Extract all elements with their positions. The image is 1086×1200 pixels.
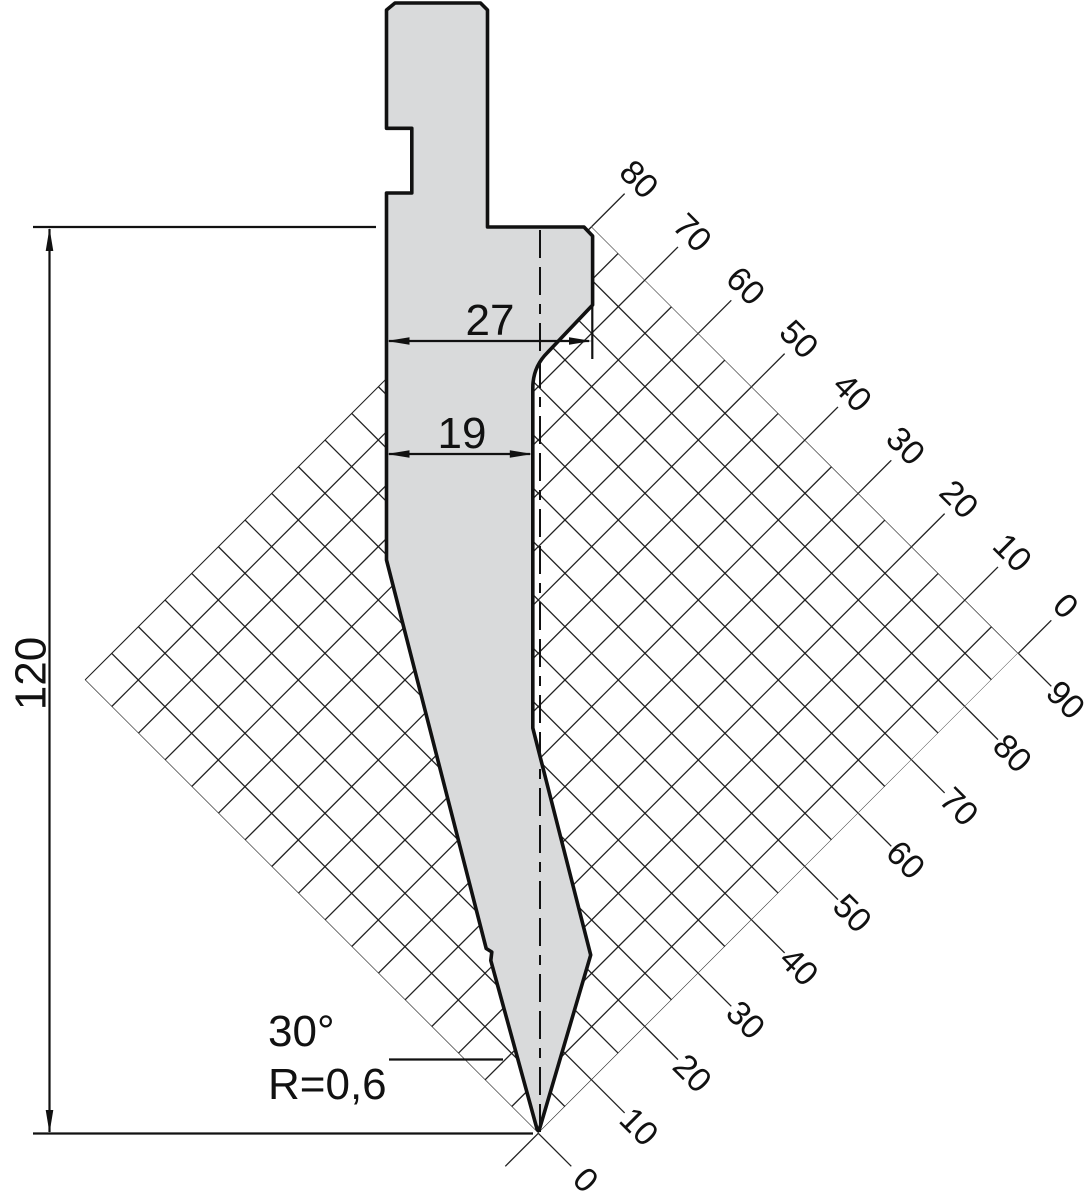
tick-line: [645, 247, 678, 280]
tick-line: [752, 920, 785, 953]
tip-angle-label: 30°: [268, 1007, 335, 1056]
tick-line: [592, 1080, 625, 1113]
tip-annotation: 30° R=0,6: [268, 1007, 503, 1109]
punch-profile: [387, 3, 593, 1130]
tick-line: [805, 867, 838, 900]
arrowhead-up: [46, 228, 54, 251]
punch-drawing-svg: 807060504030201009080706050403020100 120…: [0, 0, 1086, 1200]
dimension-body-label: 19: [438, 409, 487, 458]
tick-line: [698, 973, 731, 1006]
tick-line: [538, 1133, 571, 1166]
tick-line: [912, 514, 945, 547]
technical-drawing-canvas: 807060504030201009080706050403020100 120…: [0, 0, 1086, 1200]
tick-line: [965, 567, 998, 600]
arrowhead-down: [46, 1110, 54, 1133]
arrowhead-right: [569, 337, 592, 344]
tick-line: [858, 460, 891, 493]
tick-line: [645, 1027, 678, 1060]
tick-line: [752, 354, 785, 387]
grid-line: [512, 253, 965, 706]
grid-line: [565, 200, 1018, 653]
tick-line: [805, 407, 838, 440]
tick-line: [592, 194, 625, 227]
tick-line: [698, 300, 731, 333]
tick-line: [1018, 620, 1051, 653]
tip-radius-label: R=0,6: [268, 1060, 387, 1109]
dimension-shoulder-label: 27: [466, 296, 515, 345]
tick-line: [912, 760, 945, 793]
tick-line: [965, 707, 998, 740]
tick-line: [505, 1133, 538, 1166]
tick-line: [1018, 653, 1051, 686]
tick-line: [858, 813, 891, 846]
dimension-height-label: 120: [7, 637, 56, 710]
